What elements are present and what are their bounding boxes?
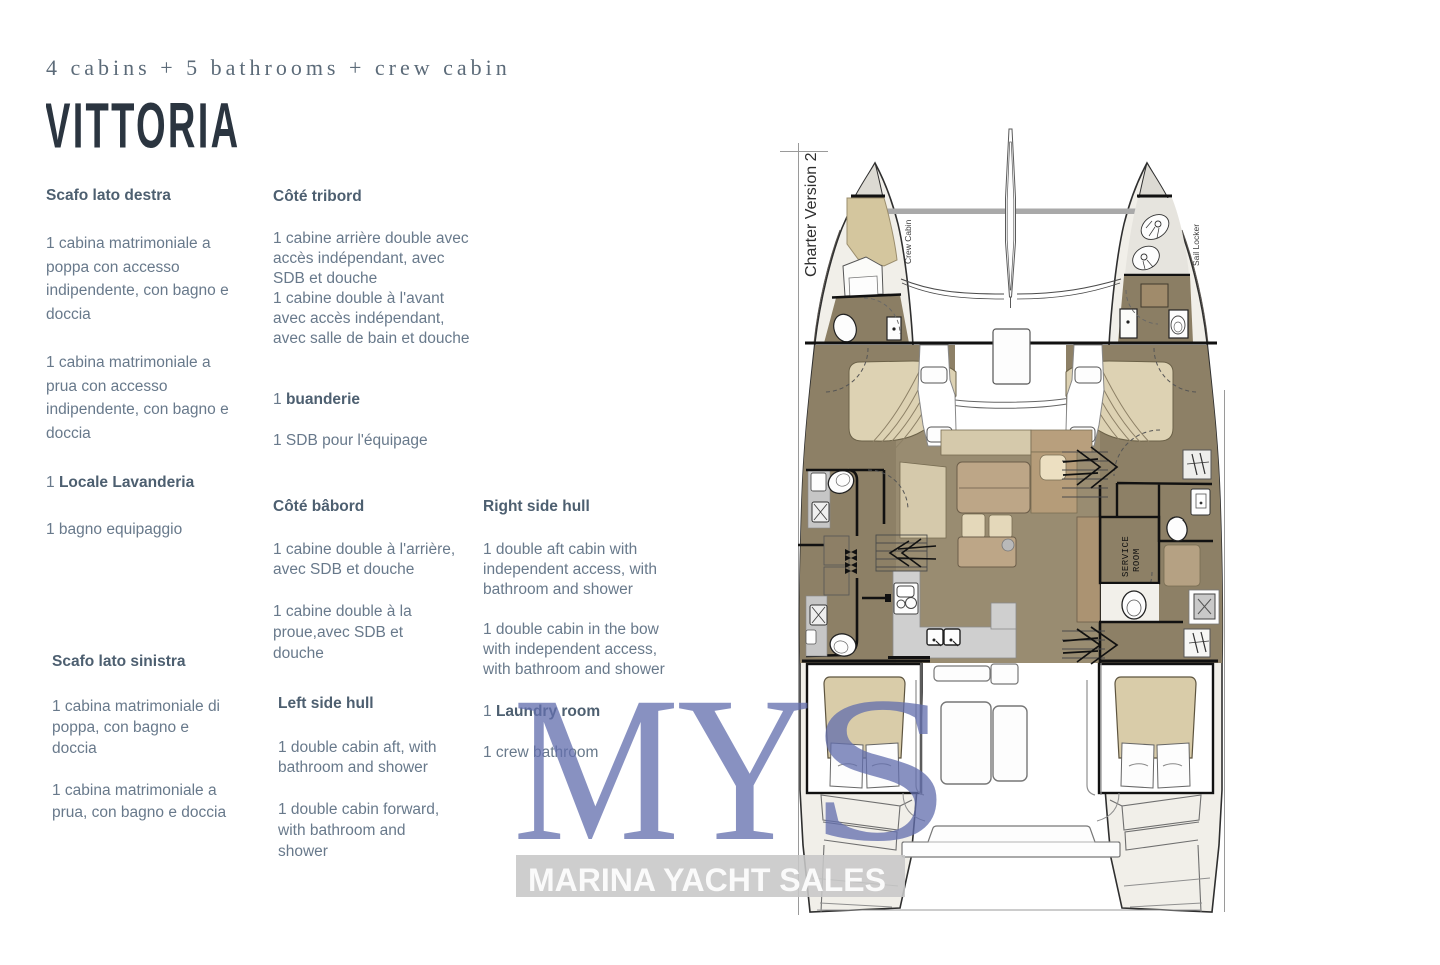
svg-text:VITTORIA: VITTORIA [46, 98, 240, 154]
svg-text:Crew Cabin: Crew Cabin [903, 219, 913, 264]
svg-text:M: M [513, 654, 679, 884]
svg-text:Sail Locker: Sail Locker [1191, 224, 1201, 266]
svg-text:ROOM: ROOM [1132, 548, 1142, 572]
svg-text:Charter Version 2: Charter Version 2 [803, 152, 820, 277]
svg-text:SERVICE: SERVICE [1121, 536, 1131, 577]
